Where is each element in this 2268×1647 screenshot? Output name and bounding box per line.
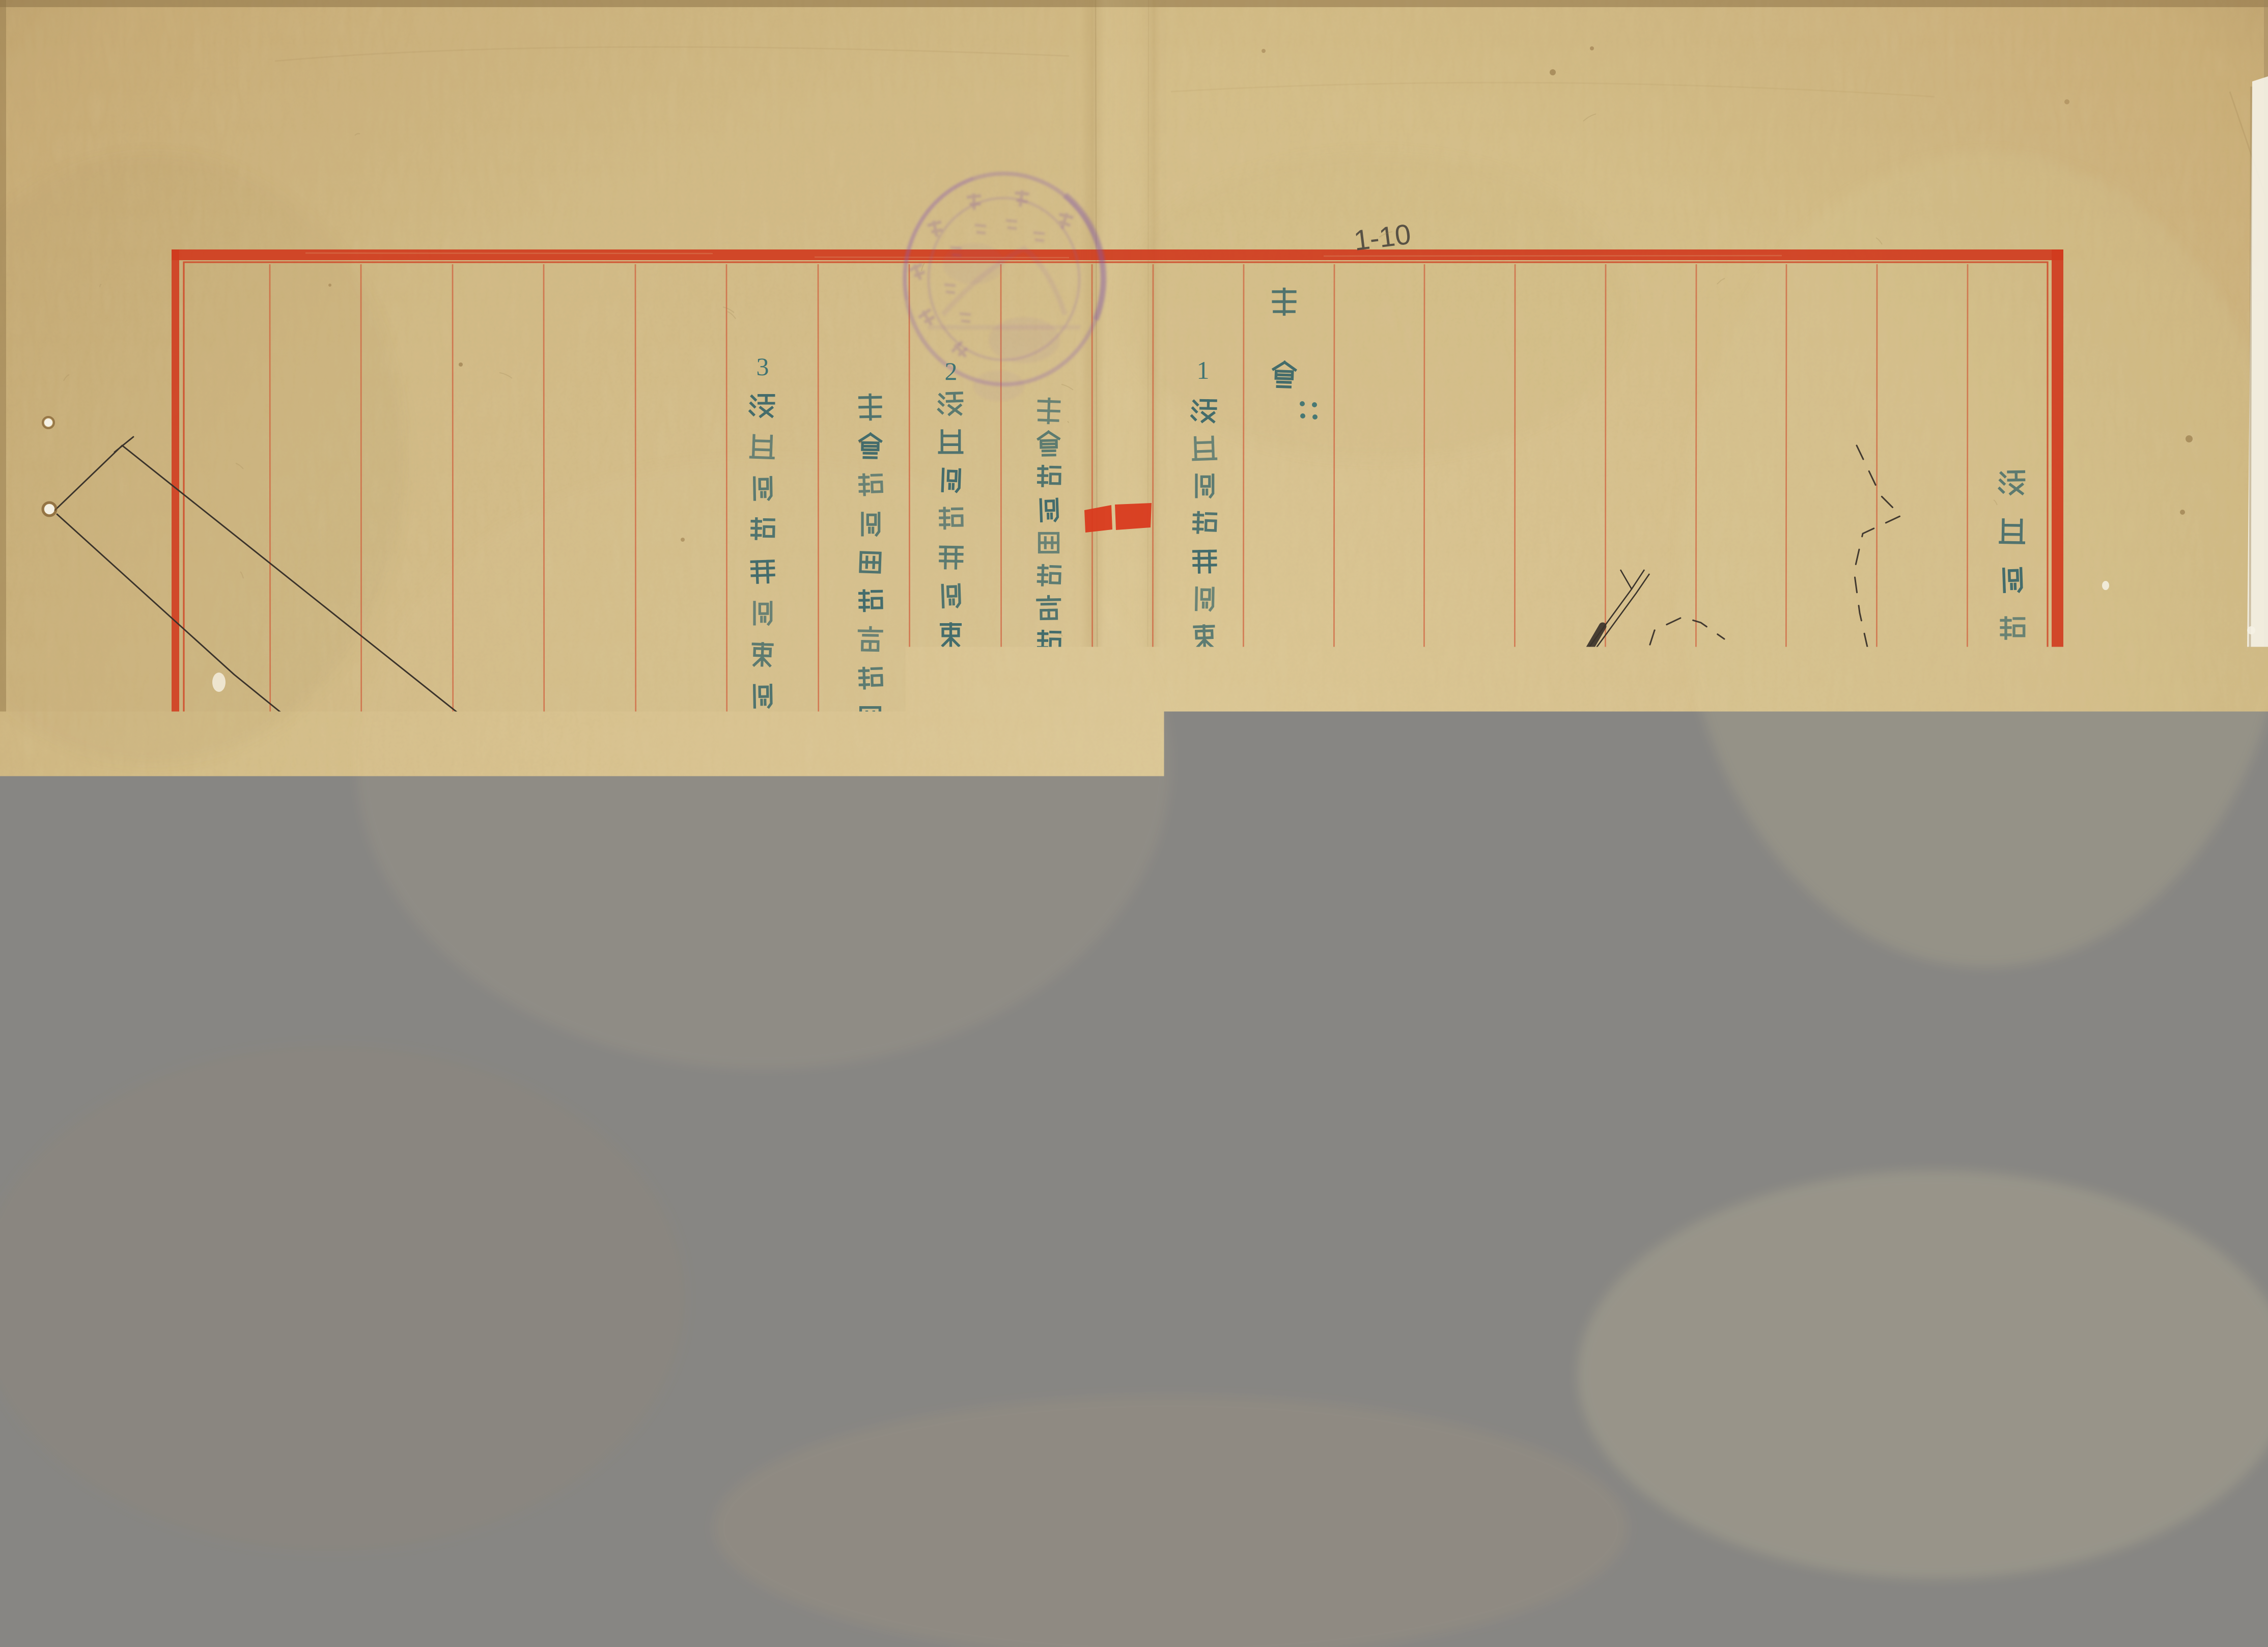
svg-text:3: 3: [757, 352, 769, 381]
svg-text:2: 2: [945, 357, 958, 385]
svg-text:1: 1: [1197, 356, 1210, 384]
